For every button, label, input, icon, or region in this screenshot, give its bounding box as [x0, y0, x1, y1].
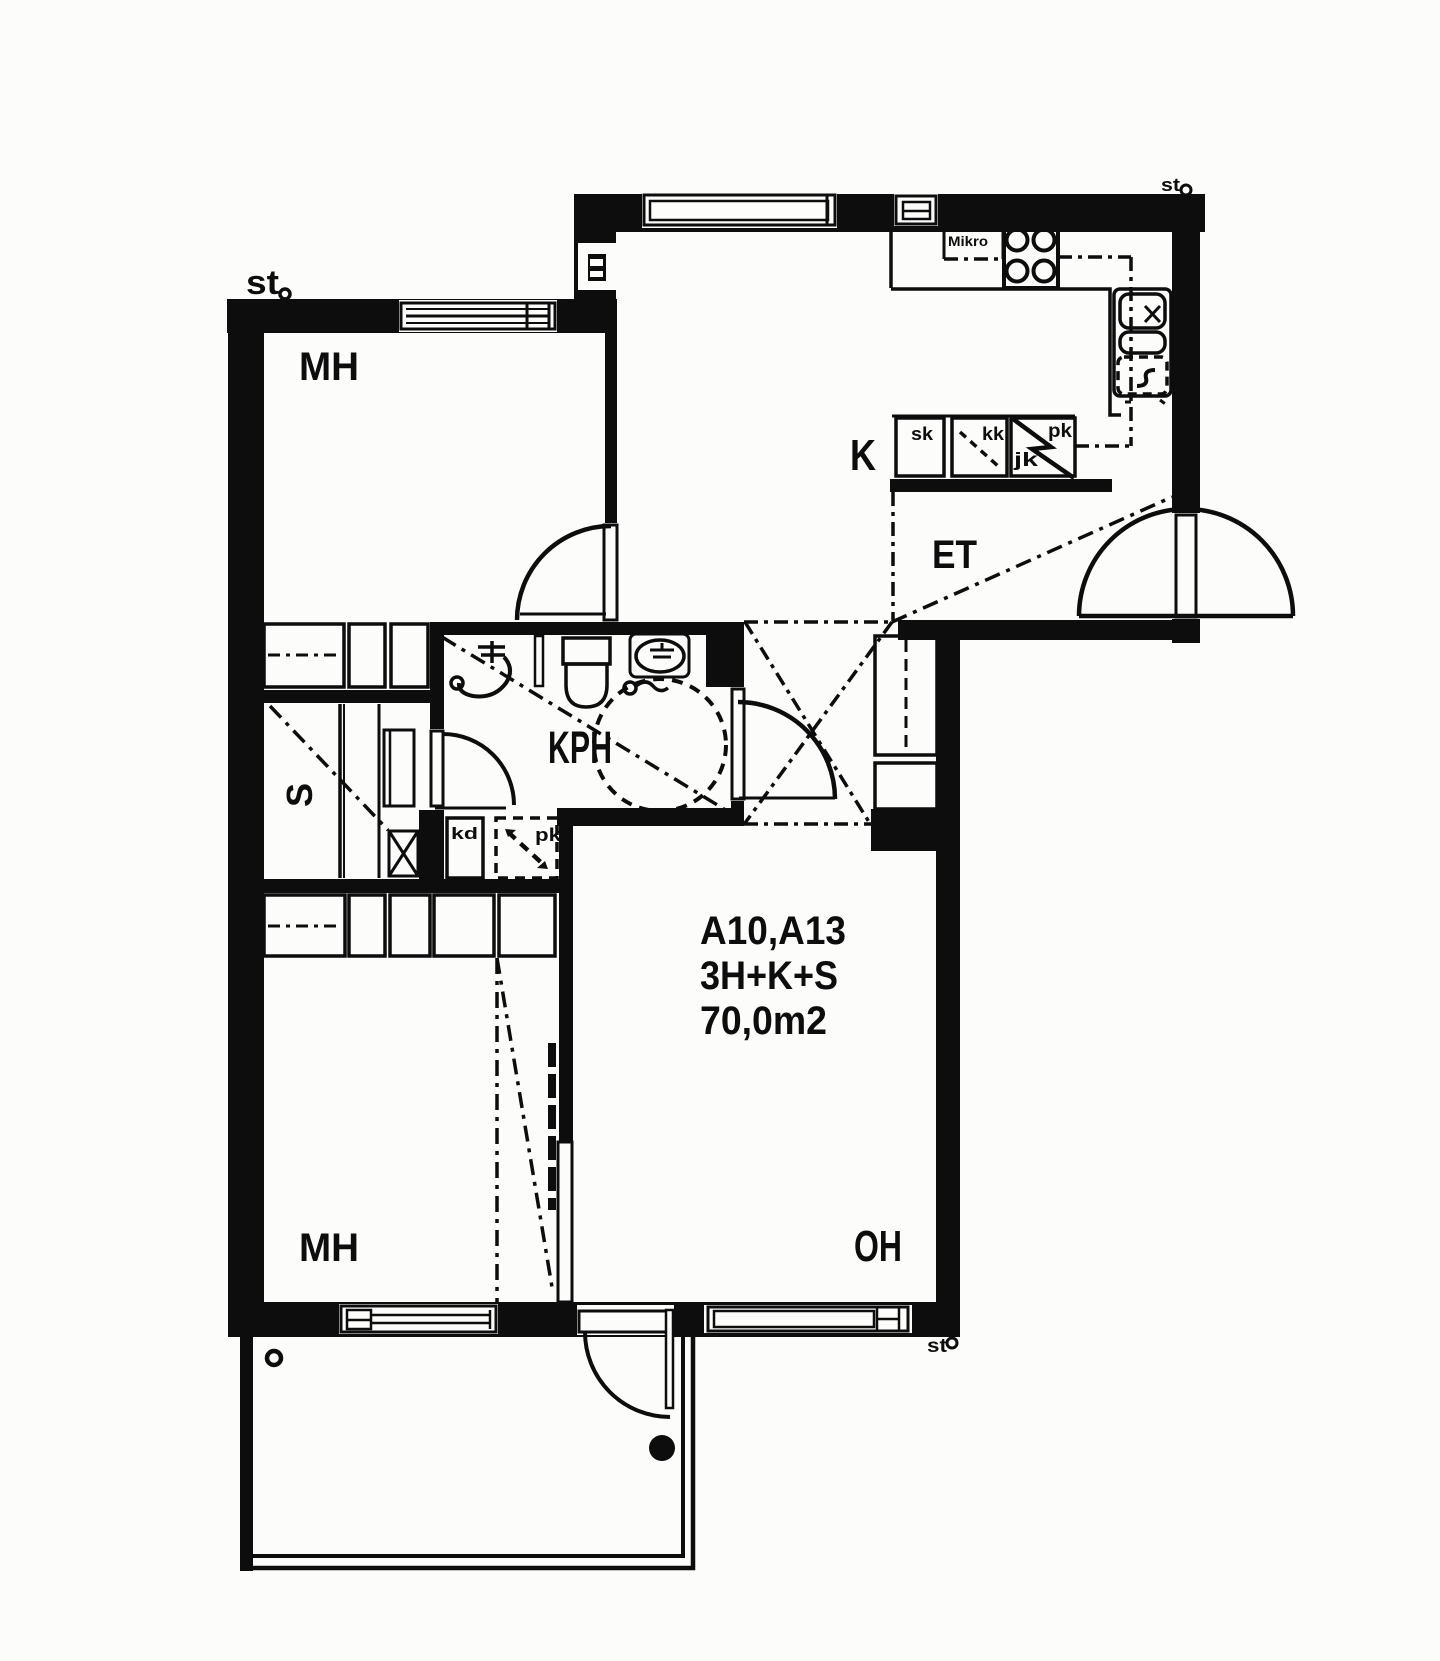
svg-text:st: st: [927, 1336, 948, 1357]
svg-text:A10,A13: A10,A13: [700, 909, 846, 953]
svg-text:st: st: [1161, 175, 1180, 195]
svg-text:3H+K+S: 3H+K+S: [700, 954, 838, 998]
svg-text:kk: kk: [982, 424, 1005, 444]
svg-text:sk: sk: [911, 424, 934, 444]
svg-text:pk: pk: [535, 825, 562, 845]
svg-text:pk: pk: [1048, 421, 1072, 442]
svg-text:K: K: [850, 431, 876, 480]
svg-text:KPH: KPH: [548, 722, 612, 773]
svg-text:70,0m2: 70,0m2: [700, 999, 827, 1043]
svg-text:Mikro: Mikro: [948, 233, 988, 249]
svg-text:kd: kd: [451, 824, 478, 843]
svg-text:jk: jk: [1012, 450, 1038, 471]
svg-text:st: st: [246, 264, 279, 302]
svg-text:OH: OH: [854, 1222, 902, 1271]
svg-text:S: S: [279, 783, 320, 807]
svg-text:MH: MH: [299, 345, 359, 389]
svg-text:MH: MH: [299, 1226, 359, 1270]
svg-text:ET: ET: [932, 533, 977, 577]
